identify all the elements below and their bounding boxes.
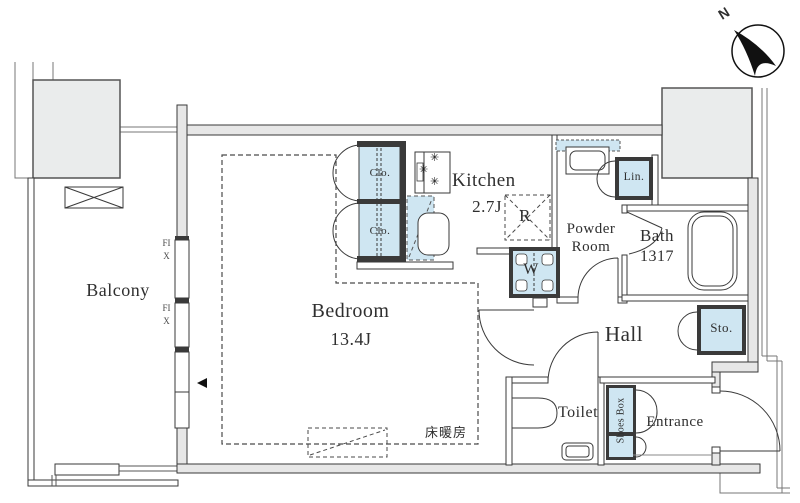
balcony-label: Balcony [78,281,158,301]
toilet-door [548,332,598,382]
floor-heating-label: 床暖房 [425,426,467,440]
floorplan: N Balcony Bedroom 13.4J Kitchen 2.7J Pow… [0,0,800,503]
kitchen-sink [418,213,449,255]
bedroom-label: Bedroom [303,300,398,322]
stove-burner-icon: ✳ [419,165,428,176]
wall-right [748,178,758,362]
bathtub [688,212,737,290]
furniture-outline [308,428,387,457]
bath-label: Bath [630,227,684,246]
balcony-access-marker-icon [197,378,207,388]
closet-doors [333,145,361,259]
hall-label: Hall [596,323,652,346]
fix-window-upper-label: FIX [162,237,171,263]
bedroom-door [479,310,534,365]
bedroom-size: 13.4J [315,330,387,350]
linen-label: Lin. [618,171,650,184]
kitchen-label: Kitchen [452,171,516,192]
fix-window-upper [175,240,189,298]
shoes-box-label: Shoes Box [616,391,627,451]
kitchen-size: 2.7J [462,198,512,217]
entrance-door-post-top [712,387,720,393]
entrance-door [720,391,780,451]
balcony-structure [28,178,178,486]
stove-burner-icon: ✳ [430,153,439,164]
windows-left-wall [175,236,207,428]
entrance-door-post-bottom [712,447,720,453]
refrigerator-label: R [511,207,539,226]
washer-label: W [517,261,545,279]
pillar-top-right [662,88,752,178]
compass [732,25,784,77]
fix-window-lower-label: FIX [162,302,171,328]
equipment-box [65,187,123,208]
fix-window-lower [175,303,189,347]
powder-room-fixtures [556,140,653,200]
toilet-label: Toilet [550,404,606,422]
closet-lower-label: Clo. [358,225,402,237]
bedroom-closets [333,141,406,262]
storage-doors [678,312,697,350]
powder-room-door [578,258,618,298]
balcony-window-lower [175,392,189,428]
bath-size: 1317 [630,248,684,266]
wall-bottom [177,464,760,473]
stove-burner-icon: ✳ [430,177,439,188]
balcony-partition [55,464,119,475]
closet-upper-label: Clo. [358,167,402,179]
wall-top [177,125,662,135]
balcony-window-upper [175,352,189,392]
entrance-label: Entrance [640,414,710,431]
pillar-top-left [33,80,120,178]
kitchen-counter-base [357,262,453,269]
powder-room-label-line2: Room [558,239,624,256]
powder-room-label-line1: Powder [558,221,624,238]
storage-label: Sto. [699,321,744,335]
